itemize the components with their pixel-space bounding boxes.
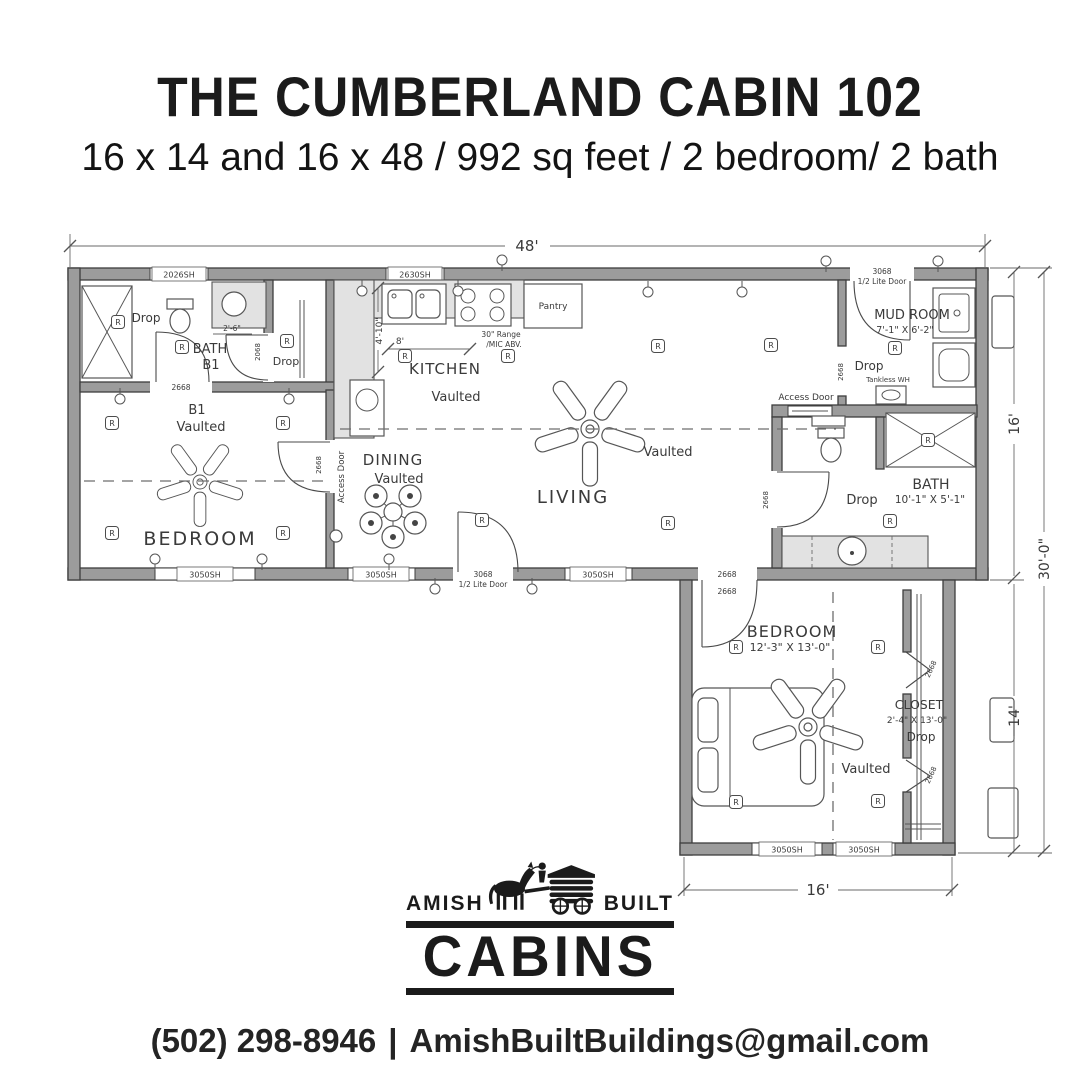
- living-name: LIVING: [537, 487, 609, 508]
- window-bath1-2026sh: 2026SH: [150, 267, 208, 281]
- svg-text:Vaulted: Vaulted: [176, 420, 225, 435]
- svg-text:2668: 2668: [924, 659, 939, 679]
- dining-name: DINING: [363, 451, 423, 469]
- tankless-label: Tankless WH: [865, 376, 910, 384]
- door-closet1: 2068: [226, 333, 274, 382]
- svg-text:Access Door: Access Door: [778, 393, 834, 403]
- contact-separator: |: [376, 1022, 409, 1059]
- svg-text:2630SH: 2630SH: [399, 271, 430, 280]
- svg-text:2'-6": 2'-6": [223, 324, 241, 333]
- svg-text:1/2 Lite Door: 1/2 Lite Door: [459, 580, 509, 589]
- amish-built-cabins-logo: AMISH: [406, 856, 674, 995]
- closet2-drop-label: Drop: [907, 730, 936, 744]
- svg-text:2668: 2668: [762, 491, 770, 509]
- dim-overall-width: 48': [515, 237, 538, 255]
- window-living-3050sh: 3050SH: [565, 567, 632, 581]
- logo-bottom-bar: [406, 988, 674, 995]
- logo-word-amish: AMISH: [406, 892, 484, 918]
- svg-text:Vaulted: Vaulted: [431, 390, 480, 405]
- svg-text:2026SH: 2026SH: [163, 271, 194, 280]
- window-dining-3050sh: 3050SH: [348, 567, 415, 581]
- kitchen-name: KITCHEN: [409, 360, 481, 378]
- svg-text:2'-4" X 13'-0": 2'-4" X 13'-0": [887, 716, 947, 726]
- svg-text:Pantry: Pantry: [539, 302, 568, 312]
- bedroom1-name: BEDROOM: [143, 528, 256, 550]
- svg-text:3050SH: 3050SH: [189, 571, 220, 580]
- mudroom-name: MUD ROOM: [874, 308, 950, 323]
- bedroom1-b1-label: B1: [188, 403, 205, 418]
- svg-text:2068: 2068: [254, 343, 262, 361]
- svg-text:2668: 2668: [315, 456, 323, 474]
- bedroom2-name: BEDROOM: [747, 622, 838, 641]
- svg-text:7'-1" X 6'-2": 7'-1" X 6'-2": [876, 325, 934, 336]
- flyer-page: THE CUMBERLAND CABIN 102 16 x 14 and 16 …: [0, 0, 1080, 1080]
- bath1-fixtures: 2'-6": [82, 282, 266, 378]
- svg-text:2668: 2668: [717, 587, 736, 596]
- svg-text:3050SH: 3050SH: [848, 846, 879, 855]
- logo-word-cabins: CABINS: [406, 929, 674, 984]
- dim-wing-depth: 14': [1007, 705, 1023, 727]
- svg-text:1/2 Lite Door: 1/2 Lite Door: [858, 277, 908, 286]
- window-bedroom2-left-3050sh: 3050SH: [752, 842, 822, 856]
- closet1-shelves: [300, 300, 304, 378]
- window-bedroom1-3050sh: 3050SH: [155, 567, 255, 581]
- svg-text:B1: B1: [202, 358, 219, 373]
- svg-text:3050SH: 3050SH: [365, 571, 396, 580]
- mudroom-drop-label: Drop: [855, 359, 884, 373]
- dim-overall-depth: 30'-0": [1037, 538, 1053, 580]
- dim-main-depth: 16': [1007, 413, 1023, 435]
- door-bath2: 2668: [762, 471, 829, 528]
- svg-text:Access Door: Access Door: [337, 450, 347, 503]
- ceiling-fan-living: [533, 378, 646, 486]
- svg-text:12'-3" X 13'-0": 12'-3" X 13'-0": [750, 641, 831, 654]
- svg-text:2668: 2668: [924, 765, 939, 785]
- contact-line: (502) 298-8946|AmishBuiltBuildings@gmail…: [0, 1022, 1080, 1060]
- svg-text:2668: 2668: [171, 383, 190, 392]
- svg-text:3050SH: 3050SH: [771, 846, 802, 855]
- kitchen-fixtures: Pantry 30" Range /MIC ABV. 4'-10" 8': [334, 280, 582, 438]
- window-bedroom2-right-3050sh: 3050SH: [833, 842, 895, 856]
- svg-text:4'-10": 4'-10": [375, 317, 385, 344]
- horse-and-wagon-logo-icon: [484, 856, 604, 918]
- dim-wing-width: 16': [806, 881, 829, 899]
- bath1-drop-label: Drop: [132, 311, 161, 325]
- svg-text:Vaulted: Vaulted: [374, 472, 423, 487]
- bath1-name: BATH: [193, 342, 228, 357]
- svg-text:3050SH: 3050SH: [582, 571, 613, 580]
- logo-word-built: BUILT: [604, 892, 674, 918]
- svg-text:30" Range: 30" Range: [481, 330, 521, 339]
- closet1-drop-label: Drop: [273, 355, 299, 368]
- closet2-name: CLOSET: [895, 697, 944, 712]
- svg-text:8': 8': [396, 337, 404, 347]
- bath2-drop-label: Drop: [846, 493, 877, 508]
- svg-text:3068: 3068: [473, 570, 492, 579]
- svg-text:/MIC ABV.: /MIC ABV.: [486, 340, 521, 349]
- svg-text:Vaulted: Vaulted: [841, 762, 890, 777]
- email-address: AmishBuiltBuildings@gmail.com: [410, 1022, 930, 1059]
- svg-text:2668: 2668: [717, 570, 736, 579]
- door-bedroom1-access: 2668 Access Door: [278, 440, 347, 503]
- window-kitchen-2630sh: 2630SH: [386, 267, 444, 281]
- phone-number: (502) 298-8946: [151, 1022, 377, 1059]
- door-mudroom-side: 2668: [837, 363, 845, 381]
- exterior-equipment: [988, 296, 1018, 838]
- svg-text:2668: 2668: [837, 363, 845, 381]
- svg-text:3068: 3068: [872, 267, 891, 276]
- ceiling-fan-bedroom1: [156, 443, 244, 527]
- svg-text:Vaulted: Vaulted: [643, 445, 692, 460]
- svg-text:10'-1" X 5'-1": 10'-1" X 5'-1": [895, 494, 965, 506]
- bath2-name: BATH: [912, 477, 949, 493]
